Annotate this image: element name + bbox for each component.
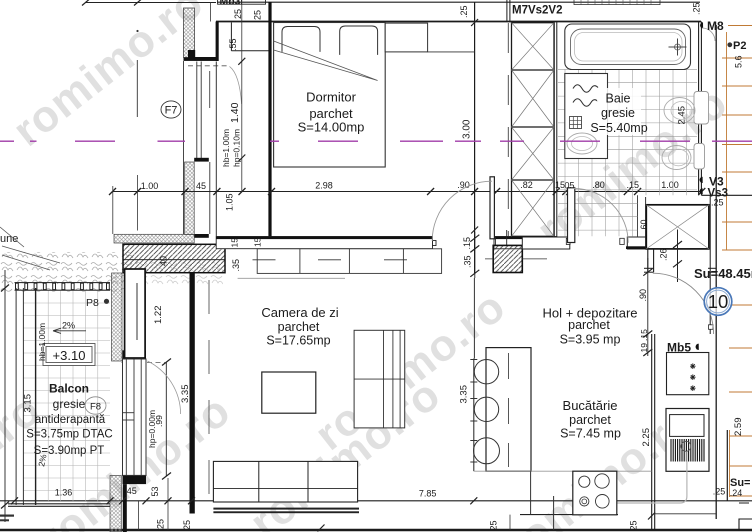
svg-text:.25: .25 (713, 487, 726, 497)
svg-text:7.85: 7.85 (419, 488, 437, 498)
svg-text:2.45: 2.45 (677, 106, 688, 125)
svg-text:Dormitor: Dormitor (306, 90, 357, 105)
svg-text:Camera de zi: Camera de zi (261, 305, 338, 320)
svg-text:.26: .26 (659, 248, 669, 261)
svg-text:gresie: gresie (601, 106, 635, 120)
svg-text:1.40: 1.40 (229, 102, 241, 123)
svg-text:2.25: 2.25 (641, 428, 652, 447)
svg-text:15: 15 (230, 238, 240, 248)
svg-text:.15: .15 (462, 237, 472, 250)
svg-text:19: 19 (639, 343, 649, 353)
svg-text:F7: F7 (165, 105, 178, 117)
svg-text:+3.10: +3.10 (53, 348, 86, 363)
svg-text:Su=: Su= (730, 477, 750, 489)
svg-text:2%: 2% (62, 321, 75, 331)
svg-text:hb=1.00m: hb=1.00m (37, 323, 47, 361)
svg-text:Bucătărie: Bucătărie (563, 398, 618, 413)
svg-text:S=17.65mp: S=17.65mp (266, 334, 330, 348)
svg-text:15: 15 (253, 237, 263, 247)
svg-text:P8: P8 (86, 297, 99, 309)
svg-text:Baie: Baie (605, 92, 630, 106)
svg-text:.15: .15 (639, 329, 649, 341)
svg-text:25: 25 (253, 10, 263, 20)
svg-text:Balcon: Balcon (49, 382, 89, 396)
svg-text:hp=0.00m: hp=0.00m (147, 410, 157, 448)
svg-text:3.35: 3.35 (180, 385, 191, 404)
svg-text:S=5.40mp: S=5.40mp (590, 121, 647, 135)
svg-text:10: 10 (708, 291, 729, 312)
svg-text:S=14.00mp: S=14.00mp (298, 120, 365, 135)
svg-text:2.59: 2.59 (733, 418, 744, 437)
svg-text:parchet: parchet (278, 320, 320, 334)
svg-text:25: 25 (182, 520, 192, 530)
svg-text:3.15: 3.15 (23, 394, 34, 413)
svg-text:hp=0.10m: hp=0.10m (232, 129, 242, 167)
svg-text:.60: .60 (639, 219, 649, 232)
svg-text:M8: M8 (707, 19, 724, 33)
svg-text:2.98: 2.98 (315, 181, 333, 191)
svg-text:.15: .15 (627, 180, 640, 190)
svg-text:Su=48.45m: Su=48.45m (694, 266, 752, 281)
svg-text:5.6: 5.6 (734, 55, 744, 68)
svg-text:antiderapantă: antiderapantă (35, 414, 106, 426)
svg-text:53: 53 (150, 486, 160, 496)
svg-text:.82: .82 (520, 180, 533, 190)
svg-text:45: 45 (127, 486, 137, 496)
svg-text:.90: .90 (638, 289, 648, 302)
svg-text:S=7.45 mp: S=7.45 mp (560, 427, 621, 441)
svg-text:S=3.75mp DTAC: S=3.75mp DTAC (26, 428, 112, 440)
svg-text:.35: .35 (463, 255, 473, 268)
svg-text:Mb3: Mb3 (220, 0, 241, 8)
svg-text:.35: .35 (231, 259, 241, 272)
svg-text:hb=1.00m: hb=1.00m (221, 129, 231, 167)
svg-text:.25: .25 (692, 2, 702, 15)
svg-text:.80: .80 (592, 180, 605, 190)
svg-text:3.00: 3.00 (462, 119, 473, 139)
svg-text:1.00: 1.00 (141, 181, 159, 191)
svg-text:parchet: parchet (568, 318, 610, 332)
svg-text:40: 40 (159, 256, 169, 266)
svg-text:25: 25 (155, 519, 165, 529)
svg-text:gresie: gresie (53, 397, 86, 411)
svg-text:M7Vs2V2: M7Vs2V2 (512, 5, 563, 17)
svg-text:1.05: 1.05 (225, 193, 235, 211)
svg-text:1.22: 1.22 (153, 306, 164, 325)
svg-text:45: 45 (196, 181, 206, 191)
svg-text:25: 25 (488, 520, 498, 530)
svg-text:1.00: 1.00 (661, 180, 679, 190)
svg-text:.55: .55 (228, 38, 238, 51)
svg-text:.24: .24 (730, 488, 743, 498)
svg-text:3.35: 3.35 (459, 385, 470, 404)
svg-text:.25: .25 (711, 198, 724, 208)
svg-text:V3: V3 (709, 175, 724, 189)
svg-text:25: 25 (628, 520, 638, 530)
svg-text:.25: .25 (459, 5, 469, 18)
svg-text:P2: P2 (733, 40, 746, 52)
svg-text:S=3.95 mp: S=3.95 mp (560, 333, 621, 347)
svg-text:parchet: parchet (569, 413, 611, 427)
svg-text:1.36: 1.36 (55, 488, 73, 498)
svg-text:F8: F8 (90, 402, 101, 413)
